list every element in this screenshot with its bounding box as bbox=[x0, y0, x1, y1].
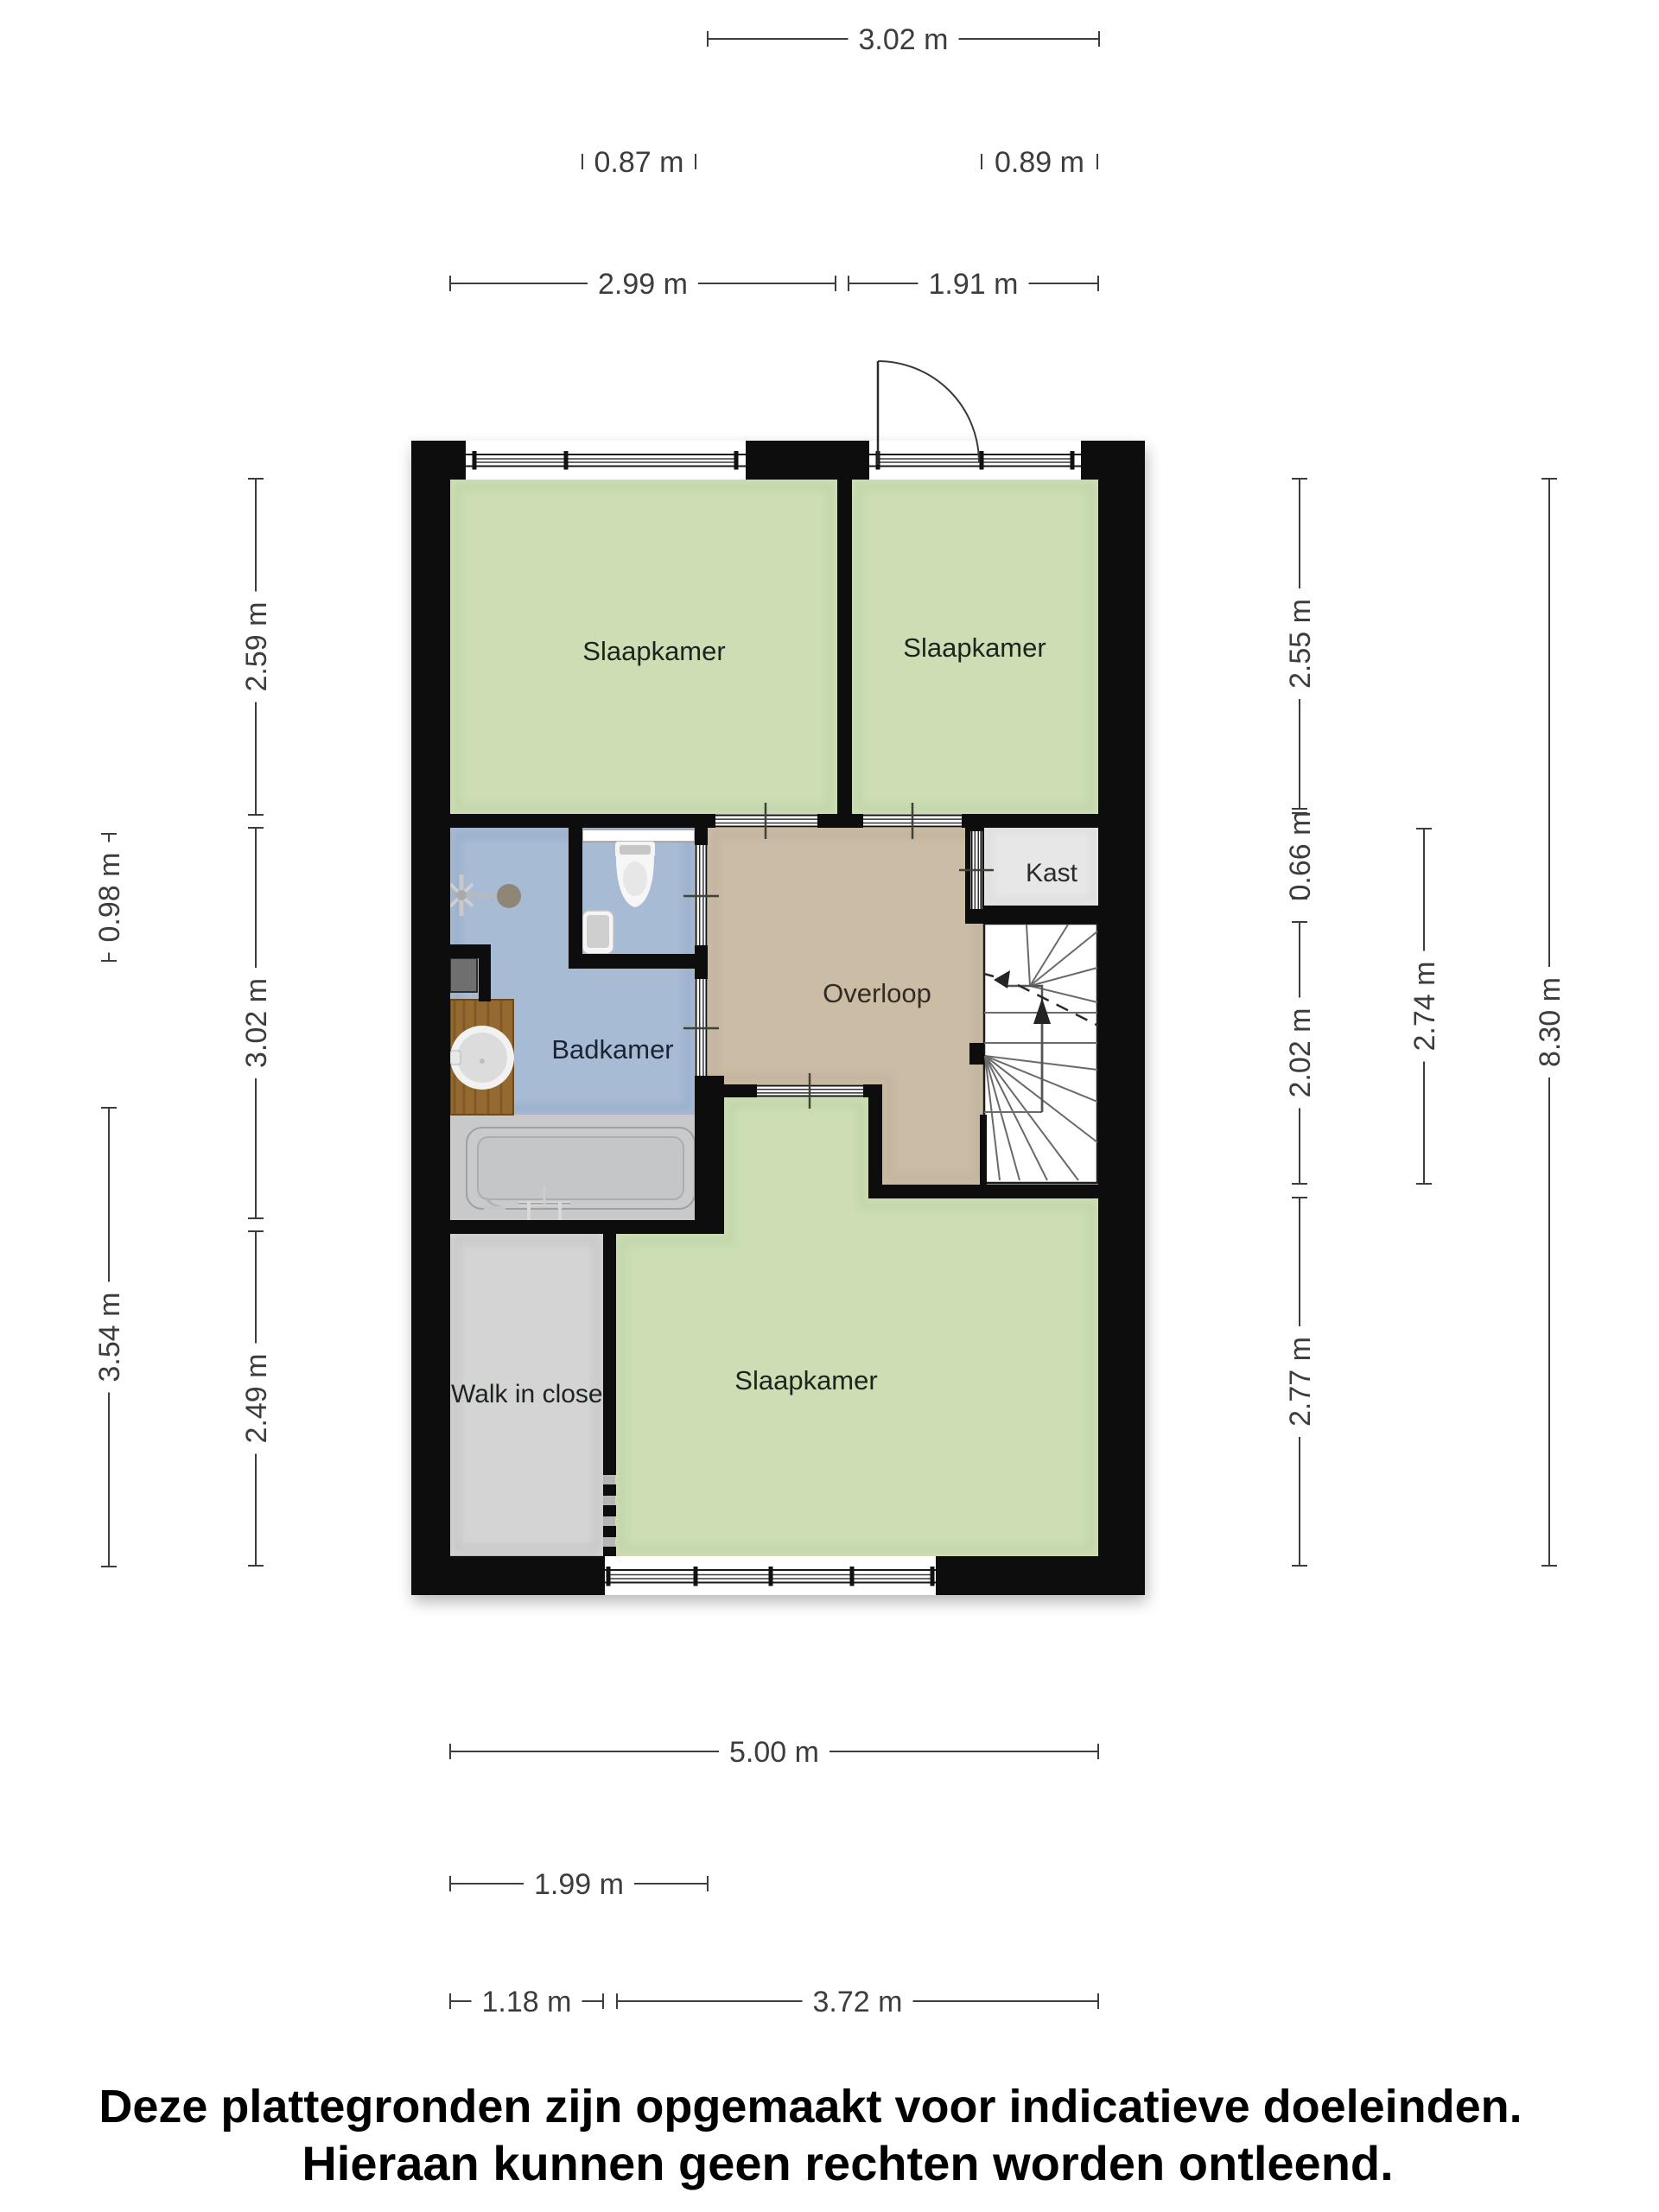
svg-text:Badkamer: Badkamer bbox=[551, 1034, 673, 1065]
svg-text:1.18 m: 1.18 m bbox=[482, 1986, 572, 2018]
svg-text:0.98 m: 0.98 m bbox=[93, 853, 126, 943]
svg-text:1.91 m: 1.91 m bbox=[929, 268, 1019, 301]
svg-text:Overloop: Overloop bbox=[823, 978, 931, 1008]
svg-text:Slaapkamer: Slaapkamer bbox=[734, 1365, 877, 1395]
svg-text:3.54 m: 3.54 m bbox=[93, 1293, 126, 1382]
svg-text:2.49 m: 2.49 m bbox=[240, 1354, 273, 1444]
svg-text:2.02 m: 2.02 m bbox=[1284, 1008, 1317, 1098]
svg-text:2.59 m: 2.59 m bbox=[240, 602, 273, 692]
svg-text:0.89 m: 0.89 m bbox=[995, 146, 1084, 179]
svg-text:Slaapkamer: Slaapkamer bbox=[582, 636, 725, 666]
svg-text:Deze plattegronden zijn opgema: Deze plattegronden zijn opgemaakt voor i… bbox=[99, 2081, 1522, 2133]
svg-text:0.66 m: 0.66 m bbox=[1284, 811, 1317, 901]
svg-text:Hieraan kunnen geen rechten wo: Hieraan kunnen geen rechten worden ontle… bbox=[302, 2136, 1393, 2190]
svg-text:1.99 m: 1.99 m bbox=[534, 1868, 624, 1901]
svg-text:2.74 m: 2.74 m bbox=[1408, 962, 1441, 1052]
svg-text:2.77 m: 2.77 m bbox=[1284, 1337, 1317, 1427]
svg-text:2.55 m: 2.55 m bbox=[1284, 599, 1317, 689]
svg-text:Slaapkamer: Slaapkamer bbox=[903, 632, 1046, 663]
svg-text:3.02 m: 3.02 m bbox=[859, 23, 949, 56]
svg-text:2.99 m: 2.99 m bbox=[598, 268, 688, 301]
svg-text:Walk in closet: Walk in closet bbox=[451, 1380, 611, 1408]
svg-text:5.00 m: 5.00 m bbox=[729, 1736, 819, 1769]
svg-text:0.87 m: 0.87 m bbox=[594, 146, 684, 179]
svg-text:Kast: Kast bbox=[1026, 859, 1078, 887]
svg-text:3.72 m: 3.72 m bbox=[813, 1986, 903, 2018]
svg-text:3.02 m: 3.02 m bbox=[240, 978, 273, 1068]
svg-text:8.30 m: 8.30 m bbox=[1534, 977, 1567, 1067]
